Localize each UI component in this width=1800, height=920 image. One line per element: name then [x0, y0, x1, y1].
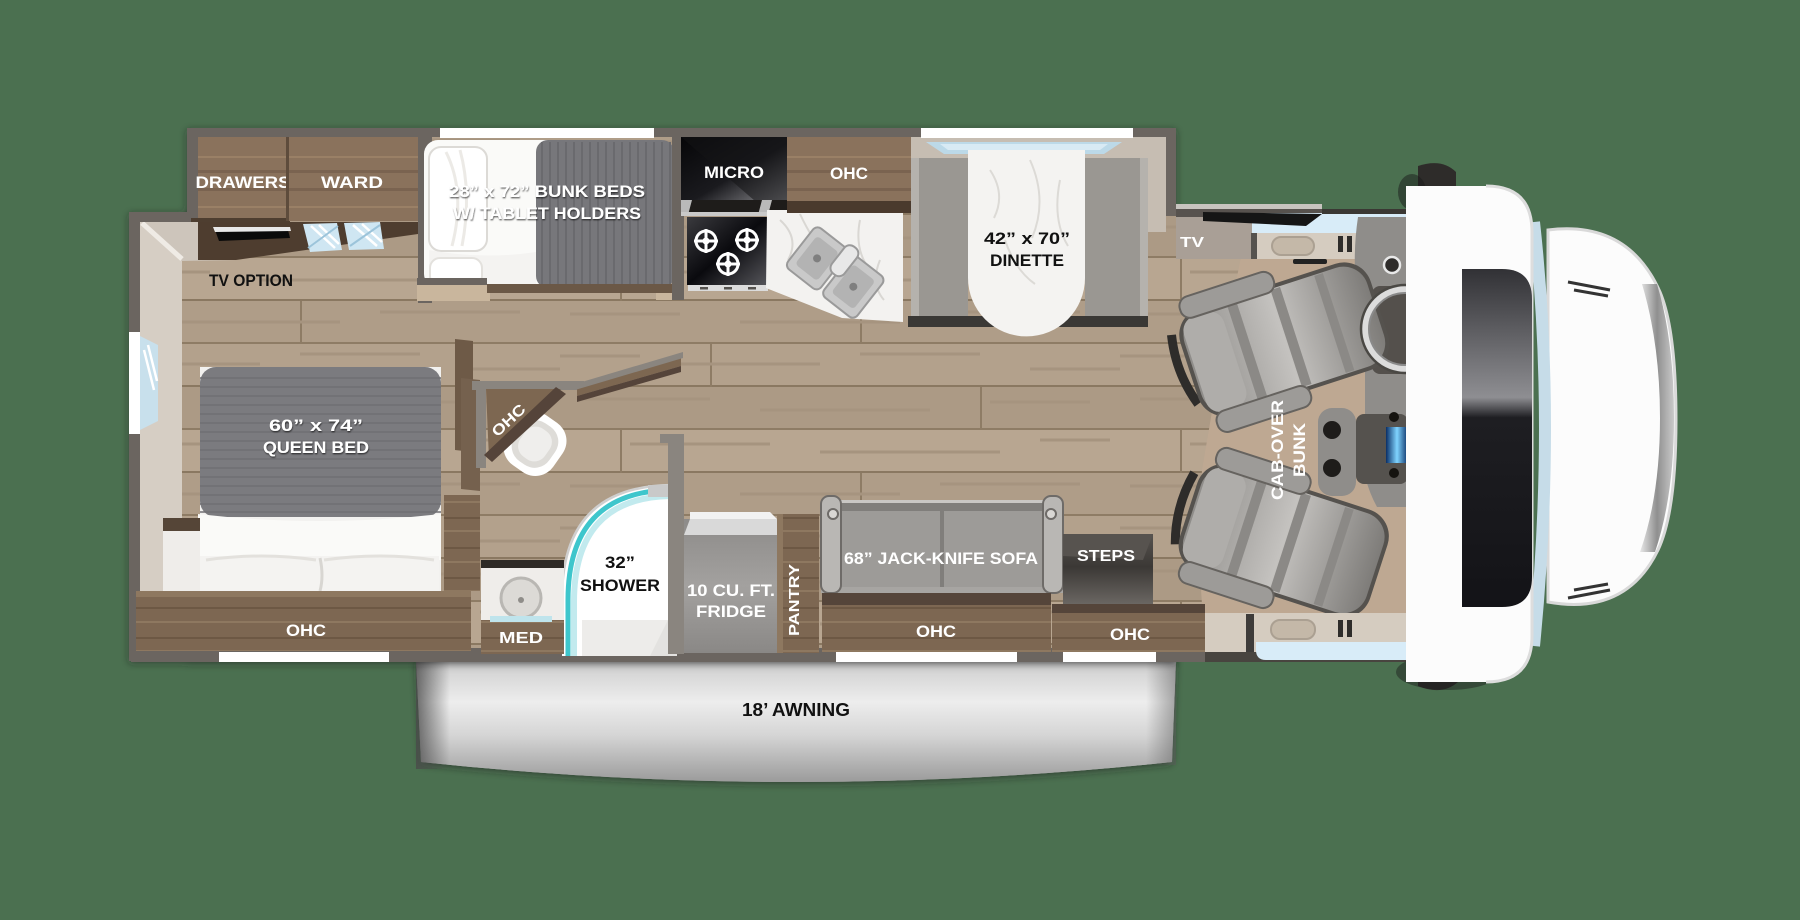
svg-text:STEPS: STEPS: [1077, 548, 1135, 565]
svg-text:DINETTE: DINETTE: [990, 251, 1064, 270]
svg-text:OHC: OHC: [286, 621, 326, 640]
svg-text:60” x 74”: 60” x 74”: [269, 416, 363, 435]
svg-text:PANTRY: PANTRY: [786, 564, 803, 636]
svg-text:68” JACK-KNIFE SOFA: 68” JACK-KNIFE SOFA: [844, 549, 1038, 568]
svg-text:BUNK: BUNK: [1290, 422, 1309, 477]
svg-text:WARD: WARD: [321, 173, 383, 192]
svg-text:OHC: OHC: [830, 164, 868, 183]
svg-text:32”: 32”: [605, 553, 635, 572]
svg-text:MED: MED: [499, 630, 543, 647]
svg-text:OHC: OHC: [1110, 625, 1150, 644]
svg-text:FRIDGE: FRIDGE: [696, 602, 766, 621]
svg-text:OHC: OHC: [916, 622, 956, 641]
svg-text:QUEEN BED: QUEEN BED: [263, 438, 369, 457]
svg-text:10 CU. FT.: 10 CU. FT.: [687, 581, 775, 600]
svg-text:CAB-OVER: CAB-OVER: [1268, 400, 1287, 500]
svg-text:42” x 70”: 42” x 70”: [984, 229, 1070, 248]
svg-text:TV OPTION: TV OPTION: [209, 271, 293, 290]
svg-text:W/ TABLET HOLDERS: W/ TABLET HOLDERS: [453, 204, 641, 223]
svg-text:28” x 72” BUNK BEDS: 28” x 72” BUNK BEDS: [449, 182, 645, 201]
svg-text:TV: TV: [1180, 234, 1204, 251]
svg-text:MICRO: MICRO: [704, 163, 764, 182]
svg-text:18’ AWNING: 18’ AWNING: [742, 700, 850, 720]
svg-text:SHOWER: SHOWER: [580, 576, 660, 595]
svg-text:DRAWERS: DRAWERS: [196, 173, 291, 192]
